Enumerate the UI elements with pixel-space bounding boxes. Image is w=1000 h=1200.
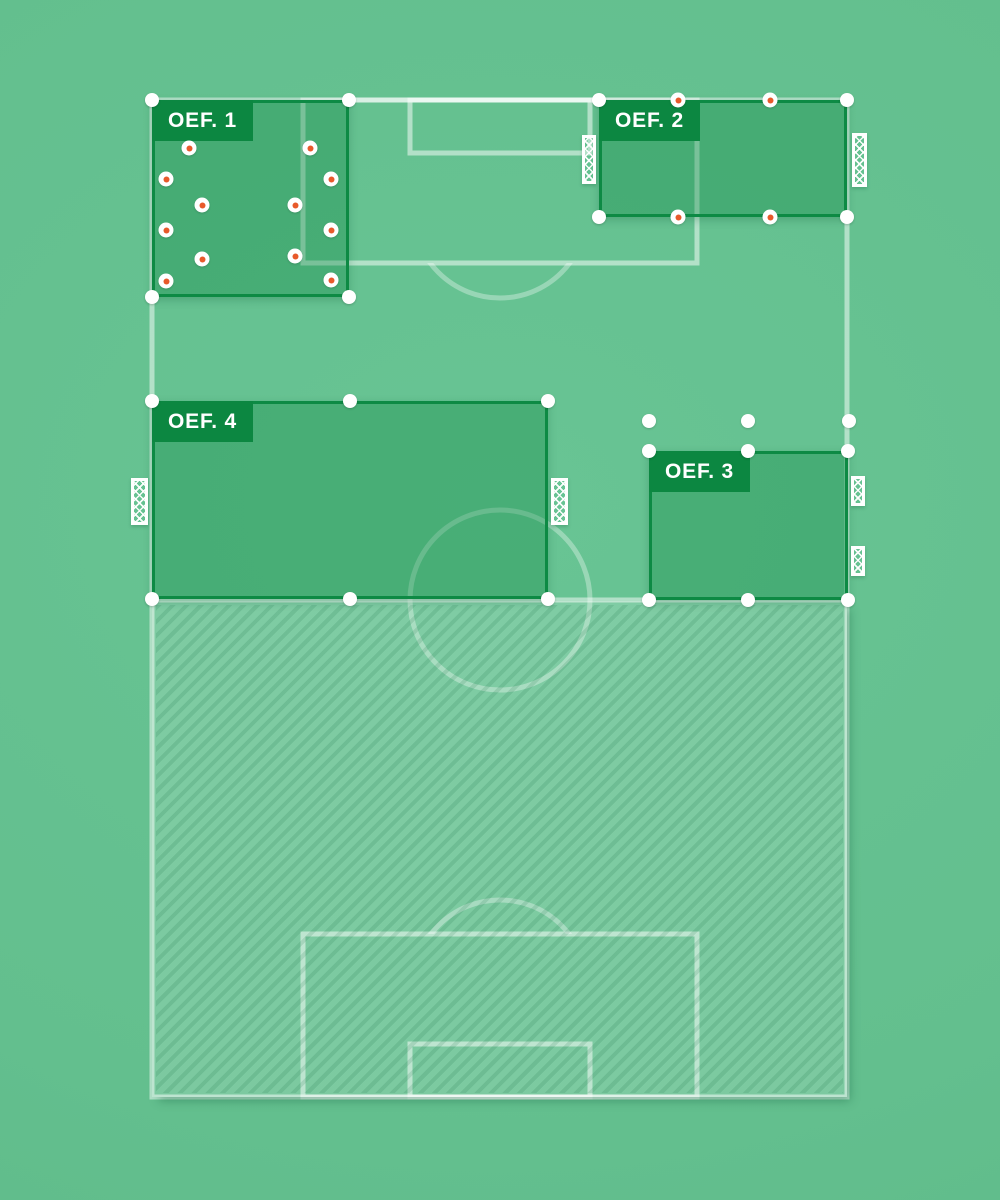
resize-handle[interactable]	[840, 93, 854, 107]
resize-handle[interactable]	[541, 592, 555, 606]
resize-handle[interactable]	[592, 93, 606, 107]
pitch-canvas: OEF. 1 OEF. 2 OEF. 3 OEF. 4	[0, 0, 1000, 1200]
resize-handle[interactable]	[145, 93, 159, 107]
marker-dot[interactable]	[741, 414, 755, 428]
marker-dot[interactable]	[842, 414, 856, 428]
resize-handle[interactable]	[642, 444, 656, 458]
resize-handle[interactable]	[642, 593, 656, 607]
resize-handle[interactable]	[841, 444, 855, 458]
resize-handle[interactable]	[342, 93, 356, 107]
resize-handle[interactable]	[741, 593, 755, 607]
resize-handle[interactable]	[342, 290, 356, 304]
resize-handle[interactable]	[343, 394, 357, 408]
resize-handle[interactable]	[840, 210, 854, 224]
resize-handle[interactable]	[592, 210, 606, 224]
resize-handle[interactable]	[741, 444, 755, 458]
resize-handle[interactable]	[145, 290, 159, 304]
resize-handle[interactable]	[343, 592, 357, 606]
resize-handle[interactable]	[841, 593, 855, 607]
handles-layer	[0, 0, 1000, 1200]
resize-handle[interactable]	[145, 394, 159, 408]
marker-dot[interactable]	[642, 414, 656, 428]
resize-handle[interactable]	[145, 592, 159, 606]
resize-handle[interactable]	[541, 394, 555, 408]
